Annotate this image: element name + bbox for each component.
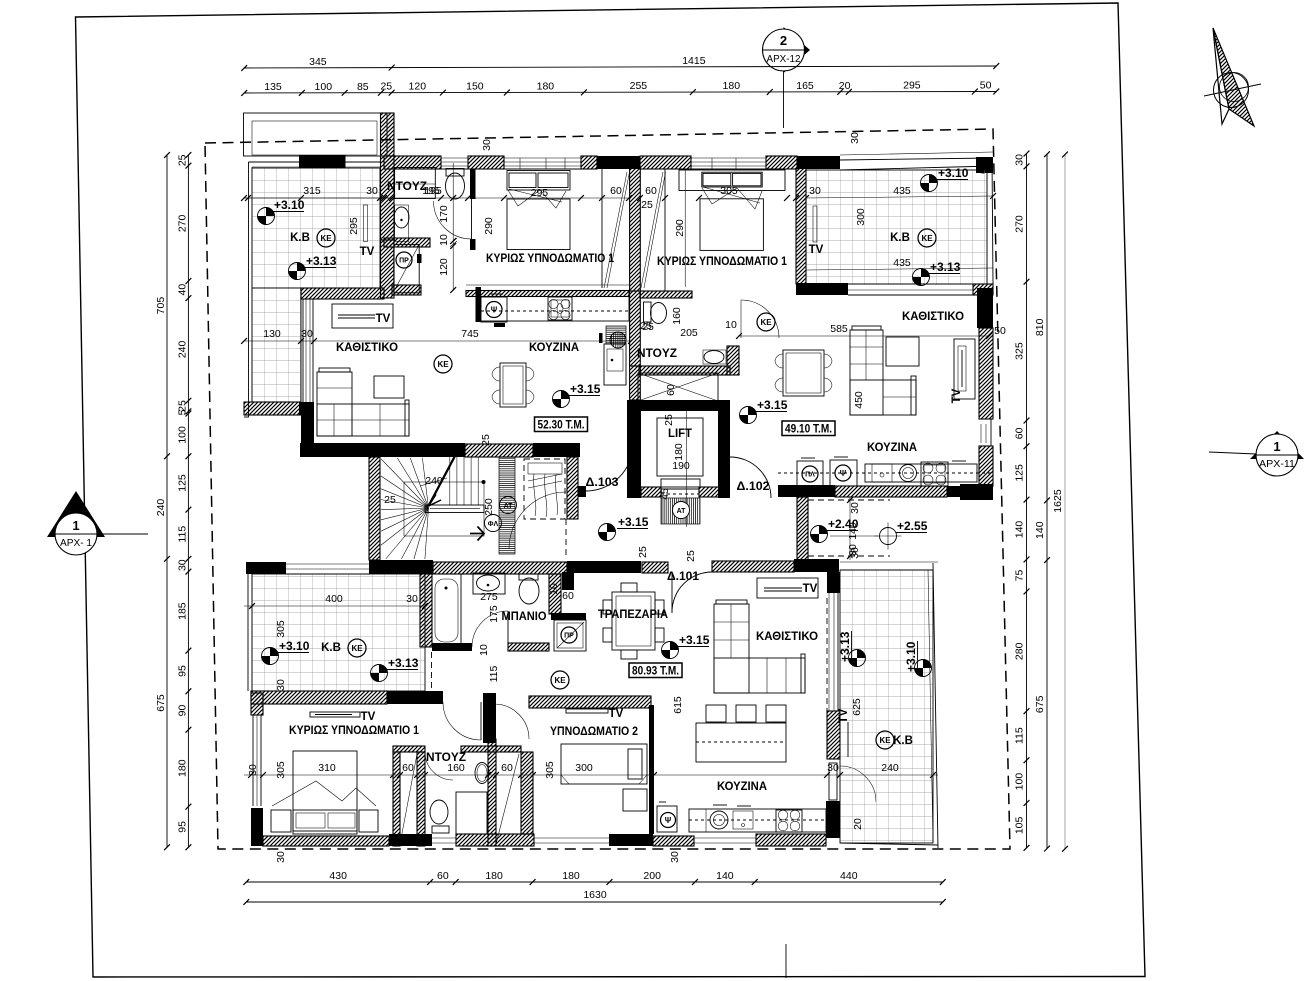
svg-text:60: 60 (645, 185, 657, 197)
svg-text:K.B: K.B (321, 642, 341, 654)
svg-text:20: 20 (839, 80, 851, 92)
svg-text:25: 25 (641, 199, 653, 211)
svg-text:52.30 T.M.: 52.30 T.M. (538, 418, 585, 432)
svg-text:75: 75 (1014, 570, 1026, 582)
svg-text:125: 125 (176, 474, 188, 492)
svg-text:310: 310 (318, 762, 336, 774)
svg-text:ΚΟΥΖΙΝΑ: ΚΟΥΖΙΝΑ (867, 442, 917, 454)
svg-text:400: 400 (325, 593, 343, 605)
svg-text:95: 95 (176, 665, 188, 677)
svg-text:430: 430 (329, 870, 347, 882)
svg-text:TV: TV (809, 244, 824, 256)
svg-text:585: 585 (830, 323, 848, 335)
svg-text:1625: 1625 (1052, 489, 1064, 513)
svg-text:30: 30 (275, 851, 287, 863)
svg-text:60: 60 (437, 870, 449, 882)
svg-text:ΠΡ: ΠΡ (399, 258, 409, 265)
svg-text:440: 440 (840, 870, 858, 882)
svg-text:30: 30 (481, 139, 493, 151)
svg-text:NTOYZ: NTOYZ (637, 348, 677, 360)
svg-text:ΚΕ: ΚΕ (320, 234, 332, 243)
svg-text:30: 30 (849, 502, 861, 514)
svg-text:105: 105 (1014, 816, 1026, 834)
svg-text:30: 30 (406, 593, 418, 605)
svg-text:435: 435 (893, 257, 911, 269)
svg-text:170: 170 (438, 205, 450, 223)
svg-text:250: 250 (483, 498, 495, 516)
svg-text:TV: TV (609, 708, 624, 720)
svg-text:290: 290 (483, 217, 495, 235)
svg-text:275: 275 (480, 591, 498, 603)
svg-text:K.B: K.B (893, 735, 913, 747)
svg-text:305: 305 (275, 761, 287, 779)
svg-text:TV: TV (376, 313, 391, 325)
svg-text:30: 30 (275, 679, 287, 691)
svg-text:195: 195 (422, 185, 440, 197)
svg-text:30: 30 (176, 559, 188, 571)
svg-text:ΚΕ: ΚΕ (879, 736, 891, 745)
svg-text:345: 345 (309, 56, 327, 68)
svg-text:60: 60 (501, 762, 513, 774)
svg-text:ΚΕ: ΚΕ (921, 234, 933, 243)
svg-text:2: 2 (780, 33, 787, 48)
svg-text:30: 30 (669, 851, 681, 863)
svg-text:TV: TV (951, 388, 963, 403)
svg-text:25: 25 (640, 320, 652, 332)
svg-text:180: 180 (562, 870, 580, 882)
svg-text:100: 100 (176, 426, 188, 444)
svg-text:LIFT: LIFT (668, 428, 692, 440)
svg-text:1630: 1630 (583, 889, 607, 901)
svg-text:135: 135 (264, 81, 282, 93)
svg-text:180: 180 (485, 870, 503, 882)
svg-text:115: 115 (1014, 727, 1026, 744)
svg-text:ΚΑΘΙΣΤΙΚΟ: ΚΑΘΙΣΤΙΚΟ (902, 311, 964, 323)
svg-text:ΚΟΥΖΙΝΑ: ΚΟΥΖΙΝΑ (717, 781, 767, 793)
svg-text:315: 315 (303, 185, 321, 197)
svg-text:60: 60 (1014, 427, 1026, 439)
svg-text:25: 25 (480, 434, 492, 446)
svg-text:295: 295 (903, 80, 921, 92)
svg-text:150: 150 (466, 81, 484, 93)
svg-text:205: 205 (680, 327, 698, 339)
svg-text:5: 5 (176, 409, 188, 415)
svg-text:120: 120 (409, 81, 427, 93)
svg-text:300: 300 (575, 762, 593, 774)
svg-text:1: 1 (72, 518, 79, 533)
svg-text:Ψ: Ψ (665, 816, 672, 825)
svg-text:49.10 T.M.: 49.10 T.M. (785, 422, 832, 436)
svg-text:+3.13: +3.13 (306, 254, 337, 268)
svg-text:100: 100 (1014, 773, 1026, 791)
svg-text:TV: TV (360, 246, 375, 258)
svg-text:10: 10 (438, 234, 450, 246)
svg-text:40: 40 (176, 284, 188, 296)
svg-text:190: 190 (672, 460, 690, 472)
svg-text:295: 295 (531, 187, 549, 199)
svg-text:25: 25 (637, 546, 649, 558)
svg-text:240: 240 (155, 499, 167, 517)
svg-text:APX-11: APX-11 (1259, 458, 1295, 470)
svg-text:ΚΟΥΖΙΝΑ: ΚΟΥΖΙΝΑ (529, 342, 579, 354)
svg-text:115: 115 (176, 526, 188, 543)
svg-text:1: 1 (1273, 439, 1280, 454)
svg-text:Δ.103: Δ.103 (586, 477, 619, 489)
svg-text:185: 185 (176, 602, 188, 620)
svg-text:ΚΕ: ΚΕ (437, 360, 449, 369)
svg-text:325: 325 (1014, 342, 1026, 360)
svg-text:295: 295 (348, 217, 360, 235)
svg-text:290: 290 (674, 219, 686, 237)
svg-text:APX-12: APX-12 (767, 53, 801, 65)
svg-text:ΑΤ: ΑΤ (677, 508, 686, 515)
svg-text:+3.10: +3.10 (938, 166, 969, 180)
svg-text:435: 435 (893, 185, 911, 197)
svg-text:125: 125 (1014, 464, 1026, 482)
svg-text:115: 115 (488, 665, 500, 682)
svg-text:25: 25 (384, 494, 396, 506)
svg-text:+3.10: +3.10 (904, 641, 918, 672)
svg-text:Ψ: Ψ (491, 305, 498, 314)
svg-text:ΚΕ: ΚΕ (554, 676, 566, 685)
svg-text:+3.15: +3.15 (618, 515, 649, 529)
svg-text:+3.13: +3.13 (388, 656, 419, 670)
svg-text:140: 140 (1034, 521, 1046, 539)
svg-text:Δ.101: Δ.101 (667, 571, 700, 583)
svg-text:60: 60 (562, 590, 574, 602)
svg-text:TV: TV (838, 708, 850, 723)
svg-text:+3.15: +3.15 (757, 398, 788, 412)
svg-text:140: 140 (1014, 521, 1026, 539)
svg-text:180: 180 (176, 759, 188, 777)
svg-text:ΠΡ: ΠΡ (564, 633, 574, 640)
svg-text:160: 160 (447, 762, 465, 774)
svg-text:+3.15: +3.15 (570, 382, 601, 396)
svg-text:20: 20 (852, 818, 864, 830)
svg-text:100: 100 (315, 81, 333, 93)
svg-text:305: 305 (544, 761, 556, 779)
svg-text:+3.13: +3.13 (838, 631, 852, 662)
svg-text:810: 810 (1034, 318, 1046, 336)
svg-text:+3.13: +3.13 (930, 260, 961, 274)
svg-text:130: 130 (263, 328, 281, 340)
svg-text:745: 745 (461, 328, 479, 340)
svg-text:K.B: K.B (890, 232, 910, 244)
svg-text:305: 305 (720, 185, 738, 197)
svg-text:ΚΕ: ΚΕ (760, 318, 772, 327)
svg-text:300: 300 (855, 208, 867, 226)
svg-text:APX- 1: APX- 1 (60, 537, 92, 549)
svg-text:270: 270 (1014, 215, 1026, 233)
svg-text:TV: TV (803, 583, 818, 595)
svg-text:165: 165 (796, 80, 814, 92)
svg-text:TV: TV (361, 711, 376, 723)
svg-text:675: 675 (155, 694, 167, 712)
svg-text:85: 85 (357, 81, 369, 93)
svg-text:120: 120 (438, 258, 450, 276)
svg-text:30: 30 (1014, 154, 1026, 166)
svg-text:160: 160 (671, 307, 683, 325)
svg-text:+3.15: +3.15 (679, 633, 710, 647)
svg-text:25: 25 (663, 414, 675, 426)
svg-text:180: 180 (673, 443, 685, 461)
svg-text:60: 60 (402, 762, 414, 774)
svg-text:95: 95 (176, 821, 188, 833)
svg-text:140: 140 (716, 870, 734, 882)
svg-text:30: 30 (847, 544, 859, 556)
svg-text:10: 10 (725, 319, 737, 331)
svg-text:K.B: K.B (290, 232, 310, 244)
svg-text:ΦΛ: ΦΛ (488, 521, 499, 528)
svg-text:240: 240 (881, 762, 899, 774)
svg-text:30: 30 (849, 132, 861, 144)
svg-text:200: 200 (643, 870, 661, 882)
svg-text:50: 50 (980, 80, 992, 92)
svg-text:ΤΡΑΠΕΖΑΡΙΑ: ΤΡΑΠΕΖΑΡΙΑ (598, 609, 668, 621)
svg-text:30: 30 (301, 328, 313, 340)
svg-text:30: 30 (247, 764, 259, 776)
svg-text:ΥΠΝΟΔΩΜΑΤΙΟ 2: ΥΠΝΟΔΩΜΑΤΙΟ 2 (550, 726, 638, 738)
svg-text:+2.40: +2.40 (828, 517, 859, 531)
svg-text:80.93 T.M.: 80.93 T.M. (632, 664, 679, 678)
svg-text:60: 60 (665, 384, 677, 396)
svg-text:90: 90 (176, 705, 188, 717)
svg-text:ΚΥΡΙΩΣ ΥΠΝΟΔΩΜΑΤΙΟ 1: ΚΥΡΙΩΣ ΥΠΝΟΔΩΜΑΤΙΟ 1 (486, 253, 615, 265)
svg-text:450: 450 (853, 391, 865, 409)
svg-text:25: 25 (380, 81, 392, 93)
svg-text:+3.10: +3.10 (274, 198, 305, 212)
svg-text:25: 25 (685, 550, 697, 562)
svg-text:625: 625 (851, 698, 863, 716)
svg-text:305: 305 (275, 620, 287, 638)
svg-text:615: 615 (672, 696, 684, 714)
svg-text:240: 240 (176, 340, 188, 358)
svg-text:1415: 1415 (682, 55, 706, 67)
svg-text:25: 25 (176, 154, 188, 166)
svg-text:255: 255 (630, 80, 648, 92)
svg-text:270: 270 (176, 214, 188, 232)
svg-text:ΚΑΘΙΣΤΙΚΟ: ΚΑΘΙΣΤΙΚΟ (336, 342, 398, 354)
svg-text:NTOYZ: NTOYZ (387, 181, 427, 193)
svg-text:240: 240 (425, 475, 443, 487)
svg-text:705: 705 (155, 297, 167, 315)
svg-text:Δ.102: Δ.102 (737, 481, 770, 493)
svg-text:180: 180 (723, 80, 741, 92)
svg-text:30: 30 (366, 185, 378, 197)
svg-text:10: 10 (478, 644, 490, 656)
svg-text:30: 30 (827, 762, 839, 774)
svg-text:180: 180 (537, 80, 555, 92)
svg-text:ΚΥΡΙΩΣ ΥΠΝΟΔΩΜΑΤΙΟ 1: ΚΥΡΙΩΣ ΥΠΝΟΔΩΜΑΤΙΟ 1 (289, 725, 420, 737)
svg-text:ΚΥΡΙΩΣ ΥΠΝΟΔΩΜΑΤΙΟ 1: ΚΥΡΙΩΣ ΥΠΝΟΔΩΜΑΤΙΟ 1 (657, 256, 788, 268)
svg-text:30: 30 (809, 185, 821, 197)
svg-text:50: 50 (994, 325, 1006, 337)
svg-text:675: 675 (1034, 695, 1046, 713)
svg-text:ΚΑΘΙΣΤΙΚΟ: ΚΑΘΙΣΤΙΚΟ (756, 631, 818, 643)
svg-text:+3.10: +3.10 (279, 639, 310, 653)
svg-text:ΚΕ: ΚΕ (351, 644, 363, 653)
svg-text:280: 280 (1014, 642, 1026, 660)
svg-text:60: 60 (610, 185, 622, 197)
svg-text:+2.55: +2.55 (897, 519, 928, 533)
